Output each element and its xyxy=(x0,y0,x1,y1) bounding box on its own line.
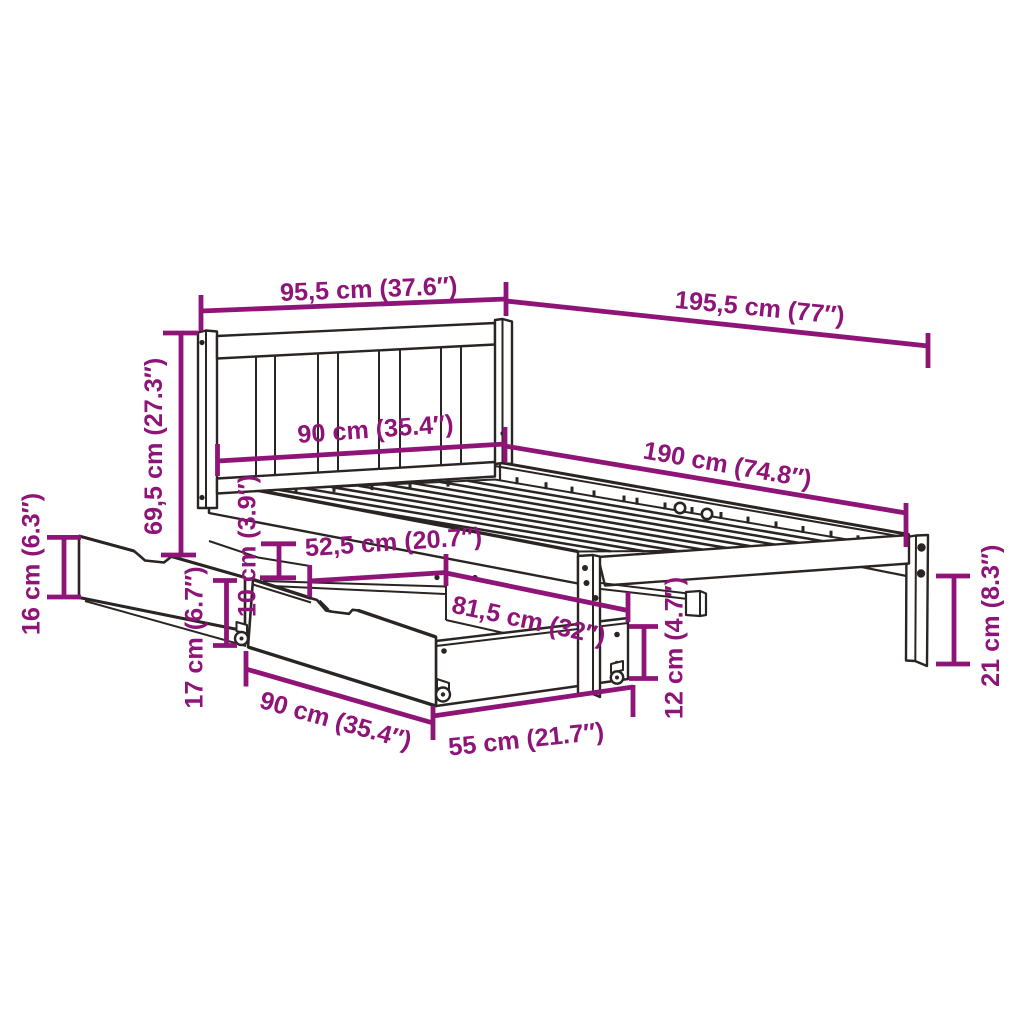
svg-text:16 cm (6.3″): 16 cm (6.3″) xyxy=(18,493,46,635)
svg-text:17 cm (6.7″): 17 cm (6.7″) xyxy=(181,566,209,708)
svg-text:55 cm (21.7″): 55 cm (21.7″) xyxy=(447,717,605,761)
svg-text:69,5 cm (27.3″): 69,5 cm (27.3″) xyxy=(140,358,168,535)
svg-text:10 cm (3.9″): 10 cm (3.9″) xyxy=(234,475,262,617)
svg-text:90 cm (35.4″): 90 cm (35.4″) xyxy=(297,410,455,449)
svg-text:21 cm (8.3″): 21 cm (8.3″) xyxy=(977,545,1005,687)
svg-text:12 cm (4.7″): 12 cm (4.7″) xyxy=(661,577,689,719)
